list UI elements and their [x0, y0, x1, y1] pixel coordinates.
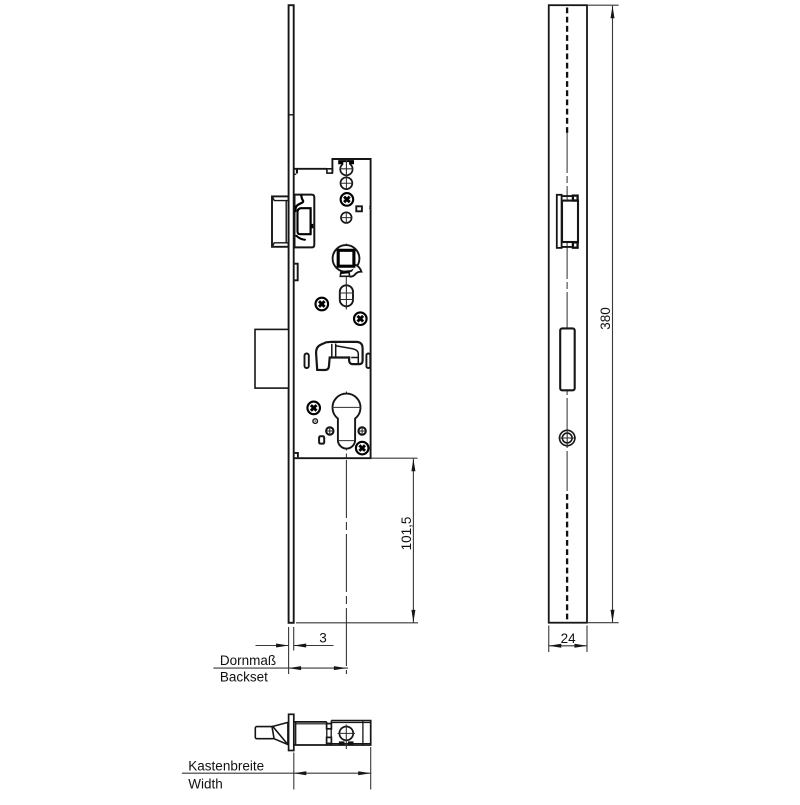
svg-text:Width: Width	[188, 776, 223, 791]
svg-text:Kastenbreite: Kastenbreite	[188, 758, 264, 773]
svg-text:24: 24	[561, 631, 577, 646]
svg-text:Backset: Backset	[220, 669, 268, 684]
svg-text:380: 380	[598, 307, 613, 330]
svg-text:Dornmaß: Dornmaß	[220, 653, 276, 668]
svg-text:3: 3	[319, 631, 327, 646]
svg-text:101,5: 101,5	[399, 517, 414, 551]
